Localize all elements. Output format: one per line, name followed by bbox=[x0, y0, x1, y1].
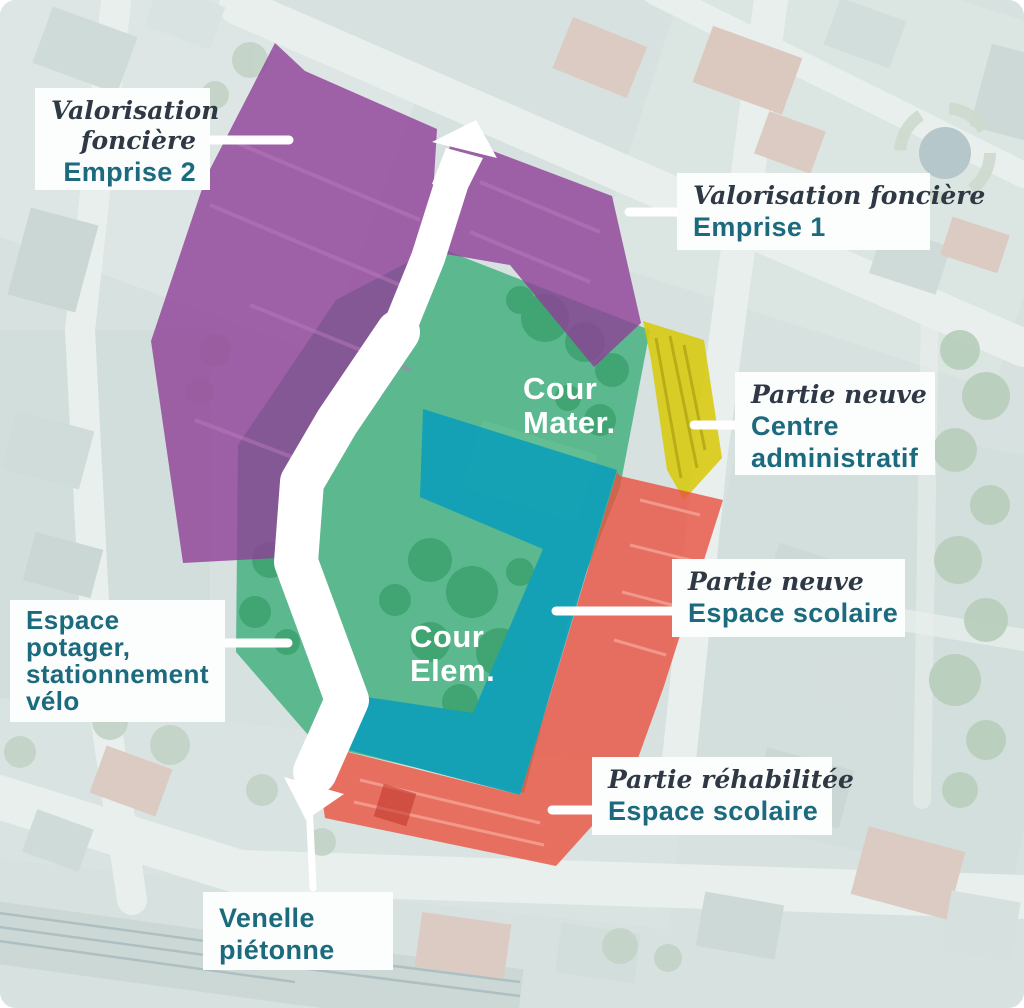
callout-venelle-line2: piétonne bbox=[219, 934, 381, 966]
cour-elem-line2: Elem. bbox=[410, 654, 495, 688]
map-label-cour-mater: Cour Mater. bbox=[523, 372, 616, 440]
callout-emprise-2-italic2: foncière bbox=[51, 126, 196, 156]
cour-mater-line1: Cour bbox=[523, 372, 616, 406]
map-label-cour-elem: Cour Elem. bbox=[410, 620, 495, 688]
site-plan-figure: Cour Mater. Cour Elem. Valorisation fonc… bbox=[0, 0, 1024, 1008]
callout-rehab-bold: Espace scolaire bbox=[608, 795, 820, 827]
callout-espace-scolaire-neuf: Partie neuve Espace scolaire bbox=[672, 559, 905, 637]
callout-centre-administratif: Partie neuve Centre administratif bbox=[735, 372, 935, 475]
callout-centre-italic: Partie neuve bbox=[751, 380, 923, 410]
callout-emprise-2-italic1: Valorisation bbox=[51, 96, 196, 126]
callout-centre-bold1: Centre bbox=[751, 410, 923, 442]
callout-venelle-line1: Venelle bbox=[219, 902, 381, 934]
callout-potager-line3: stationnement bbox=[26, 661, 213, 688]
callout-neuf-bold: Espace scolaire bbox=[688, 597, 893, 629]
callout-potager: Espace potager, stationnement vélo bbox=[10, 600, 225, 722]
callout-emprise-1: Valorisation foncière Emprise 1 bbox=[677, 173, 930, 250]
callout-rehabilitee: Partie réhabilitée Espace scolaire bbox=[592, 757, 832, 835]
venelle-leader-line bbox=[309, 802, 313, 888]
cour-elem-line1: Cour bbox=[410, 620, 495, 654]
callout-potager-line2: potager, bbox=[26, 634, 213, 661]
callout-potager-line4: vélo bbox=[26, 688, 213, 715]
callout-centre-bold2: administratif bbox=[751, 442, 923, 474]
callout-rehab-italic: Partie réhabilitée bbox=[608, 765, 820, 795]
callout-emprise-1-italic: Valorisation foncière bbox=[693, 181, 918, 211]
callout-emprise-1-bold: Emprise 1 bbox=[693, 211, 918, 243]
callout-venelle: Venelle piétonne bbox=[203, 892, 393, 970]
callout-neuf-italic: Partie neuve bbox=[688, 567, 893, 597]
cour-mater-line2: Mater. bbox=[523, 406, 616, 440]
callout-emprise-2: Valorisation foncière Emprise 2 bbox=[35, 88, 210, 190]
callout-emprise-2-bold: Emprise 2 bbox=[51, 156, 196, 188]
callout-potager-line1: Espace bbox=[26, 607, 213, 634]
